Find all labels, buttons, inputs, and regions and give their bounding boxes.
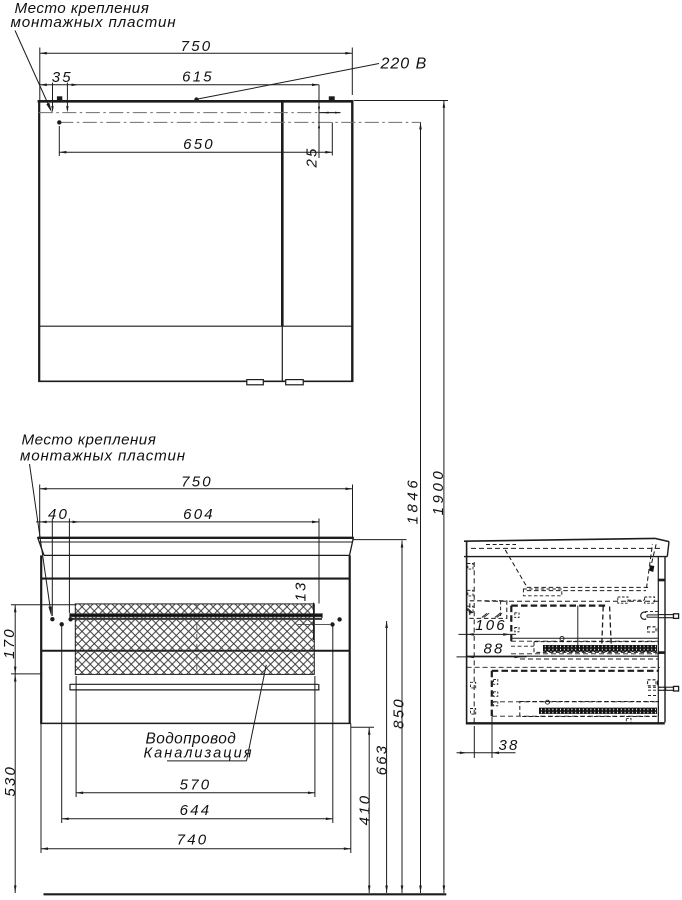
svg-text:40: 40 [48,506,69,523]
svg-text:410: 410 [357,794,374,826]
svg-text:615: 615 [182,69,214,86]
svg-text:38: 38 [498,737,519,754]
svg-text:750: 750 [181,474,213,491]
svg-text:монтажных пластин: монтажных пластин [20,448,186,465]
svg-text:170: 170 [1,627,18,659]
svg-text:220 В: 220 В [380,56,428,73]
svg-text:650: 650 [183,136,215,153]
svg-text:35: 35 [52,69,73,86]
svg-text:604: 604 [183,506,215,523]
svg-text:Канализация: Канализация [144,745,254,761]
svg-text:570: 570 [180,777,212,794]
svg-text:850: 850 [391,697,408,729]
svg-text:88: 88 [483,641,504,658]
svg-text:13: 13 [293,580,310,601]
svg-text:530: 530 [2,765,19,797]
svg-text:25: 25 [304,146,321,168]
svg-text:740: 740 [177,832,209,849]
svg-text:1846: 1846 [405,477,422,525]
svg-text:106: 106 [475,617,507,634]
svg-text:644: 644 [180,802,212,819]
svg-text:1900: 1900 [430,468,447,516]
svg-text:монтажных пластин: монтажных пластин [11,14,177,31]
svg-text:663: 663 [374,744,391,776]
svg-text:750: 750 [181,38,213,55]
svg-text:Место крепления: Место крепления [22,432,157,449]
